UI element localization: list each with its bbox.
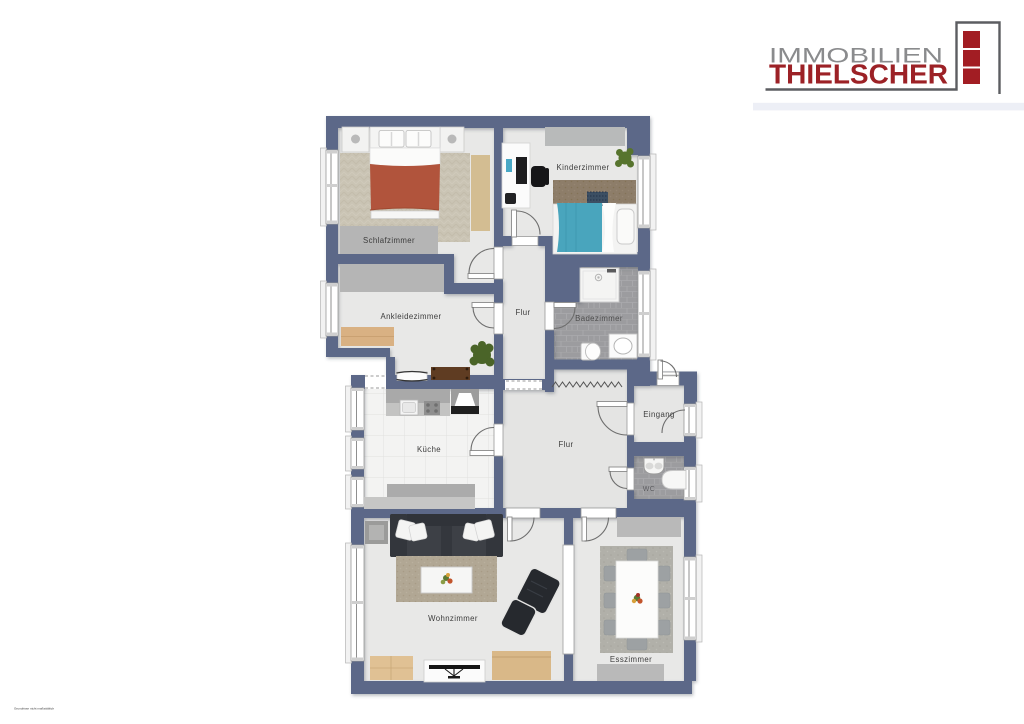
svg-text:Küche: Küche [417,445,441,454]
svg-text:Eingang: Eingang [643,410,674,419]
svg-text:Badezimmer: Badezimmer [575,314,623,323]
svg-text:Esszimmer: Esszimmer [610,655,652,664]
svg-text:THIELSCHER: THIELSCHER [769,59,948,90]
svg-text:Grundrisse nicht maßstäblich: Grundrisse nicht maßstäblich [14,707,54,711]
svg-text:Ankleidezimmer: Ankleidezimmer [380,312,441,321]
svg-text:Flur: Flur [515,308,530,317]
svg-text:WC: WC [643,486,655,493]
svg-text:Schlafzimmer: Schlafzimmer [363,236,415,245]
svg-text:Wohnzimmer: Wohnzimmer [428,614,478,623]
svg-text:Flur: Flur [558,440,573,449]
svg-text:Kinderzimmer: Kinderzimmer [557,163,610,172]
